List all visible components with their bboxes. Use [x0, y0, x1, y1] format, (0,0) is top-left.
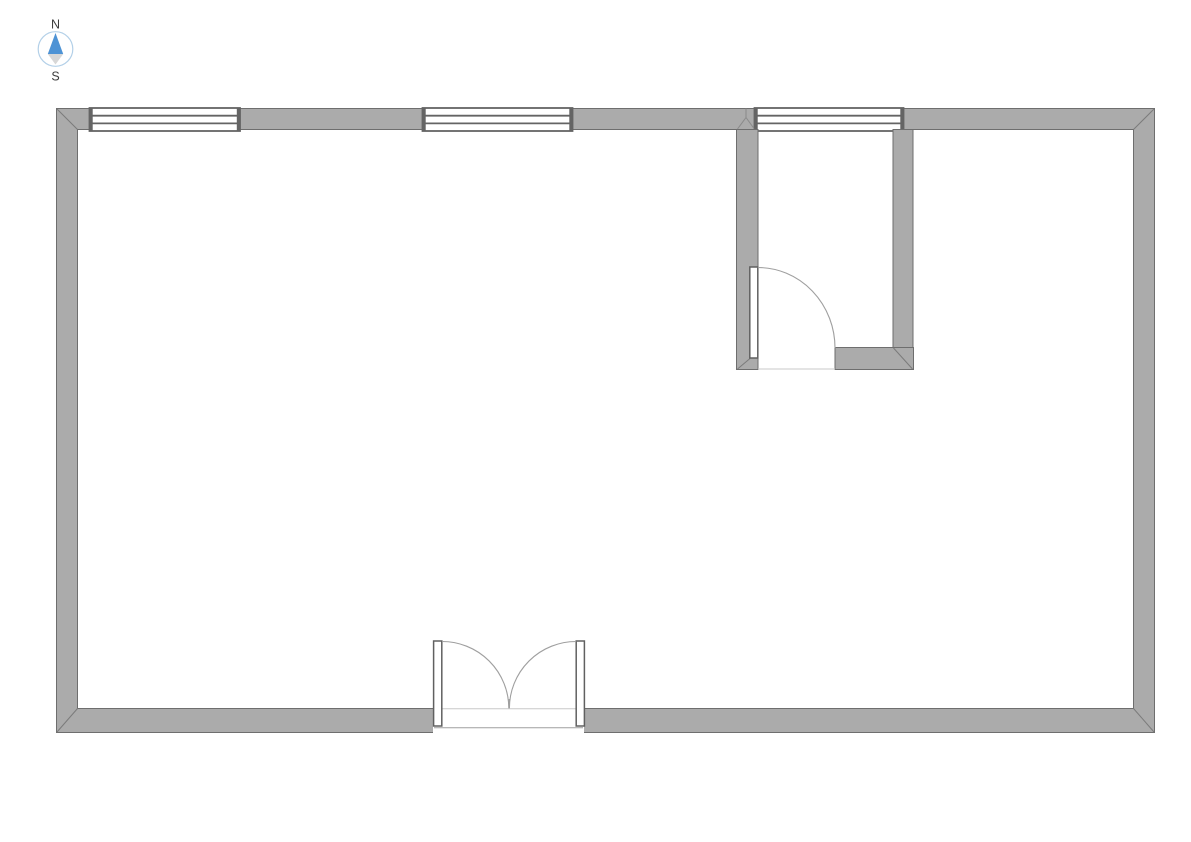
double-door-right-leaf — [576, 641, 584, 726]
double-door-right-swing-arc — [509, 642, 576, 709]
door-opening — [433, 708, 584, 734]
window-1 — [90, 108, 241, 132]
window-2 — [423, 108, 573, 132]
double-door-south — [433, 641, 584, 734]
compass-north-label: N — [51, 18, 60, 32]
window-2-end-cap — [423, 108, 426, 132]
interior-door-leaf — [750, 267, 758, 358]
window-3-frame — [755, 108, 904, 131]
window-1-end-cap — [237, 108, 240, 132]
window-3-end-cap — [900, 108, 903, 132]
floor-plan-drawing: N S — [0, 0, 1191, 842]
compass-south-label: S — [51, 70, 59, 84]
double-door-left-swing-arc — [442, 642, 509, 709]
floor-plan-page: N S — [0, 0, 1191, 842]
window-3-end-cap — [755, 108, 758, 132]
interior-room-bottom-wall — [835, 348, 914, 370]
window-2-end-cap — [569, 108, 572, 132]
double-door-left-leaf — [434, 641, 442, 726]
interior-room-right-wall — [893, 130, 913, 370]
window-2-frame — [423, 108, 573, 131]
interior-door-swing-arc — [758, 268, 835, 349]
compass-icon: N S — [38, 18, 73, 84]
outer-walls — [57, 109, 1155, 733]
window-3 — [755, 108, 904, 132]
outer-wall-band — [57, 109, 1155, 733]
window-1-frame — [90, 108, 241, 131]
interior-room — [737, 109, 914, 370]
window-1-end-cap — [90, 108, 93, 132]
